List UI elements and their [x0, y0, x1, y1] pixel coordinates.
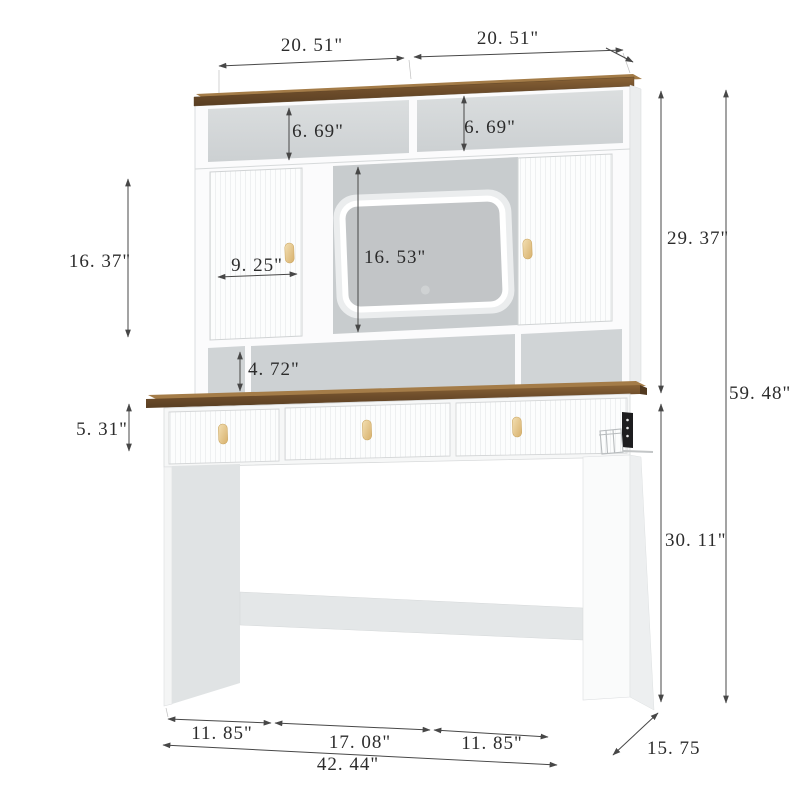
- drawer-handle-center: [362, 420, 372, 440]
- dim-line-hutch-top-left-width: [219, 58, 404, 66]
- dim-label-hutch-height: 29. 37": [667, 228, 729, 249]
- support-beam: [240, 592, 583, 640]
- power-outlet-dot: [626, 427, 629, 430]
- open-shelf-left: [208, 346, 245, 397]
- furniture-dimension-diagram: 20. 51" 20. 51" 6. 69" 6. 69" 16. 37" 9.…: [0, 0, 800, 800]
- diagram-canvas: 20. 51" 20. 51" 6. 69" 6. 69" 16. 37" 9.…: [0, 0, 800, 800]
- dim-label-floor-left-width: 11. 85": [191, 723, 253, 744]
- dim-line-floor-center-width: [275, 723, 430, 730]
- dim-label-upper-shelf-right-height: 6. 69": [464, 117, 516, 138]
- dim-line-hutch-top-right-width: [414, 50, 623, 57]
- drawer-handle-left: [218, 424, 228, 444]
- drawer-handle-right: [512, 417, 522, 437]
- open-shelf-right: [521, 329, 622, 387]
- left-leg: [172, 464, 240, 704]
- power-outlet-dot: [626, 435, 629, 438]
- dim-label-hutch-top-right-width: 20. 51": [477, 28, 539, 49]
- dim-label-cabinet-door-width: 9. 25": [231, 255, 283, 276]
- dim-label-total-width: 42. 44": [317, 754, 379, 775]
- right-door-handle: [523, 239, 533, 259]
- left-leg-front-edge: [164, 467, 172, 706]
- desk-top-end: [640, 385, 647, 395]
- dim-label-desk-height: 30. 11": [665, 530, 727, 551]
- dim-label-total-height: 59. 48": [729, 383, 791, 404]
- upper-shelf-right: [417, 90, 623, 152]
- dim-label-upper-shelf-left-height: 6. 69": [292, 121, 344, 142]
- hutch-side-panel: [630, 85, 641, 384]
- dim-label-open-shelf-height: 4. 72": [248, 359, 300, 380]
- power-outlet-dot: [626, 419, 629, 422]
- right-leg: [583, 455, 630, 700]
- right-leg-side: [630, 455, 654, 710]
- dim-label-drawer-height: 5. 31": [76, 419, 128, 440]
- left-door-handle: [285, 243, 295, 263]
- furniture-illustration: [146, 74, 654, 710]
- right-cabinet-door: [518, 154, 612, 325]
- dim-label-mirror-section-height: 16. 53": [364, 247, 426, 268]
- dim-label-floor-right-width: 11. 85": [461, 733, 523, 754]
- dim-label-cabinet-height: 16. 37": [69, 251, 131, 272]
- dim-label-hutch-top-left-width: 20. 51": [281, 35, 343, 56]
- dim-label-floor-center-width: 17. 08": [329, 732, 391, 753]
- power-strip: [622, 412, 633, 448]
- dim-label-depth: 15. 75: [647, 738, 701, 759]
